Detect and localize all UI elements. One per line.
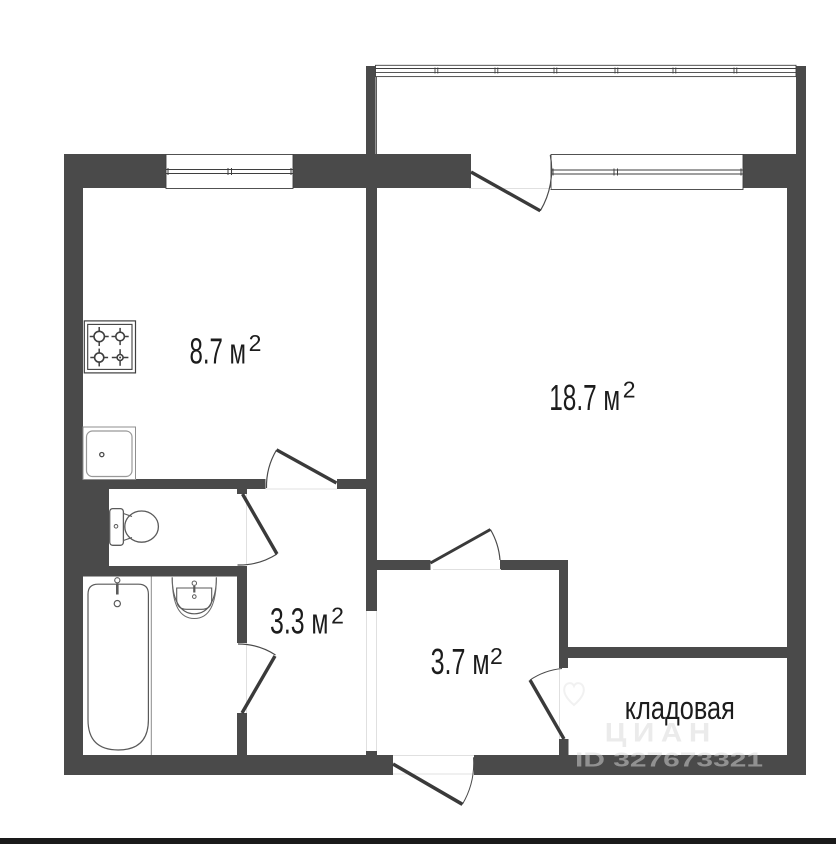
svg-text:ID 327673321: ID 327673321 <box>575 750 763 772</box>
svg-text:2: 2 <box>249 330 262 356</box>
svg-text:8.7 м: 8.7 м <box>190 331 247 372</box>
svg-text:3.7 м: 3.7 м <box>431 641 490 682</box>
svg-text:2: 2 <box>490 643 503 669</box>
svg-text:2: 2 <box>623 377 636 403</box>
svg-text:2: 2 <box>331 602 344 628</box>
svg-text:3.3 м: 3.3 м <box>270 601 329 642</box>
svg-text:ЦИАН: ЦИАН <box>605 718 717 748</box>
svg-text:18.7 м: 18.7 м <box>549 377 620 418</box>
